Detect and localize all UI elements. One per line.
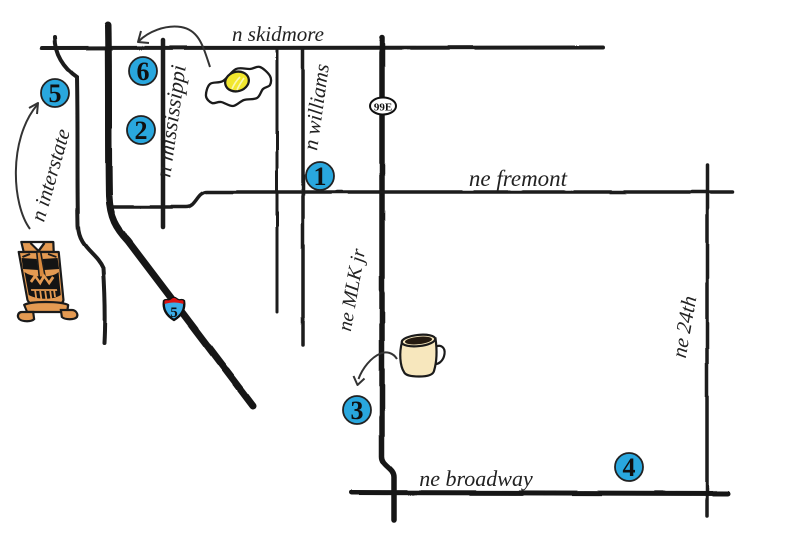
svg-text:n mississippi: n mississippi: [150, 63, 190, 178]
svg-text:n interstate: n interstate: [26, 126, 75, 224]
svg-text:2: 2: [135, 116, 148, 145]
svg-text:ne 24th: ne 24th: [667, 294, 701, 360]
svg-text:ne fremont: ne fremont: [469, 166, 568, 191]
svg-text:ne MLK jr: ne MLK jr: [334, 247, 370, 333]
svg-text:ne broadway: ne broadway: [419, 466, 533, 491]
svg-text:5: 5: [170, 305, 178, 321]
svg-text:99E: 99E: [374, 102, 392, 114]
svg-text:6: 6: [137, 57, 150, 86]
svg-text:5: 5: [49, 79, 62, 108]
svg-text:3: 3: [351, 396, 364, 425]
svg-text:4: 4: [623, 453, 636, 482]
svg-text:1: 1: [314, 162, 327, 191]
svg-text:n skidmore: n skidmore: [232, 22, 324, 46]
